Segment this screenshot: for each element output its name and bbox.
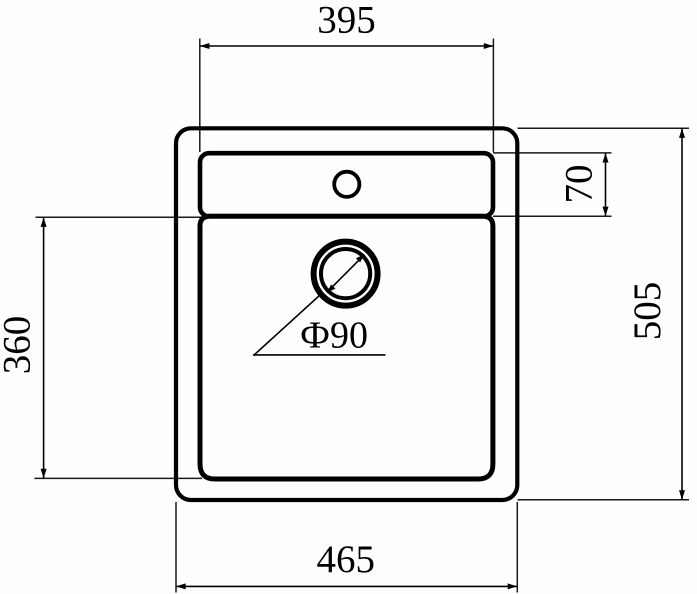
svg-text:505: 505 (626, 282, 669, 341)
svg-text:465: 465 (316, 538, 375, 581)
svg-text:395: 395 (317, 0, 376, 42)
svg-text:360: 360 (0, 316, 39, 375)
svg-text:Ф90: Ф90 (300, 315, 368, 357)
svg-text:70: 70 (558, 165, 601, 204)
